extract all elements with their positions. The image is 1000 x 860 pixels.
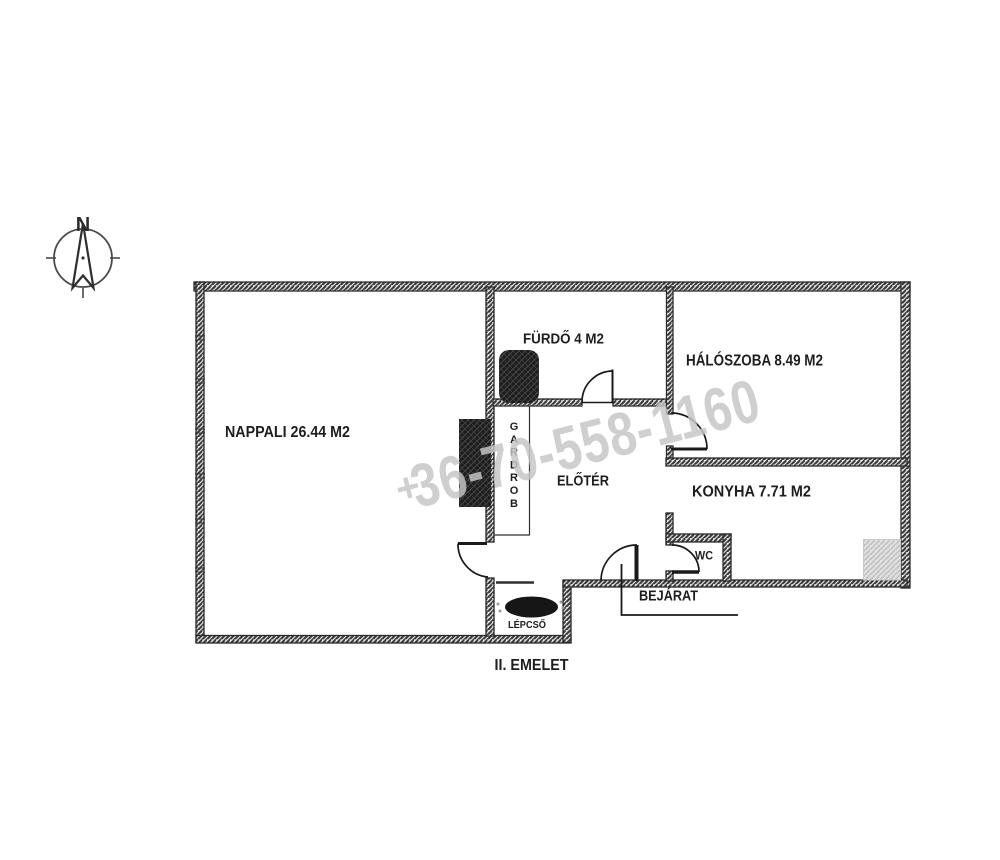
svg-text:KONYHA 7.71 M2: KONYHA 7.71 M2 [692, 484, 811, 501]
svg-text:HÁLÓSZOBA 8.49 M2: HÁLÓSZOBA 8.49 M2 [686, 352, 823, 370]
svg-text:B: B [510, 498, 518, 510]
svg-text:N: N [76, 214, 90, 236]
svg-text:WC: WC [695, 551, 713, 563]
svg-text:II. EMELET: II. EMELET [495, 657, 569, 674]
svg-text:FÜRDŐ 4 M2: FÜRDŐ 4 M2 [523, 330, 604, 348]
svg-text:LÉPCSŐ: LÉPCSŐ [508, 618, 546, 631]
svg-text:BEJÁRAT: BEJÁRAT [639, 588, 698, 605]
svg-text:NAPPALI 26.44 M2: NAPPALI 26.44 M2 [225, 424, 350, 441]
